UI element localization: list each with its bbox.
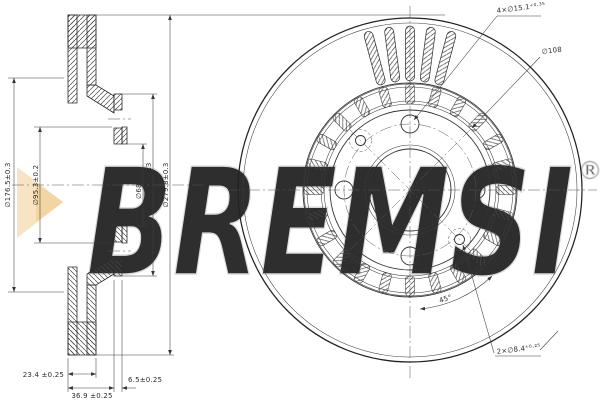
vent-slot-section	[363, 26, 457, 86]
dim-flange-thickness: 6.5±0.25	[128, 376, 162, 384]
dim-hat-diameter: ∅150.4±0.3	[145, 162, 153, 207]
dim-bolt-holes: 4×∅15.1⁺⁰·³⁵	[496, 1, 545, 15]
brake-disc-technical-drawing-page: BREMSI ®	[0, 0, 600, 400]
dim-disc-thickness: 23.4 ±0.25	[23, 371, 64, 379]
dim-bolt-circle: ∅108	[541, 46, 562, 56]
dim-pin-holes: 2×∅8.4⁺⁰·²⁵	[496, 343, 541, 356]
technical-drawing-canvas: BREMSI ®	[0, 0, 600, 400]
dim-pilot-diameter: ∅95.3±0.2	[32, 165, 40, 205]
dim-outer-diameter: ∅279.8±0.3	[162, 162, 170, 207]
dim-bore-diameter: ∅68⁺⁰·¹	[135, 171, 143, 199]
section-half-profile	[68, 15, 131, 144]
dim-overall-height: 36.9 ±0.25	[71, 392, 112, 400]
dim-friction-inner-diameter: ∅176.5±0.3	[4, 162, 12, 207]
